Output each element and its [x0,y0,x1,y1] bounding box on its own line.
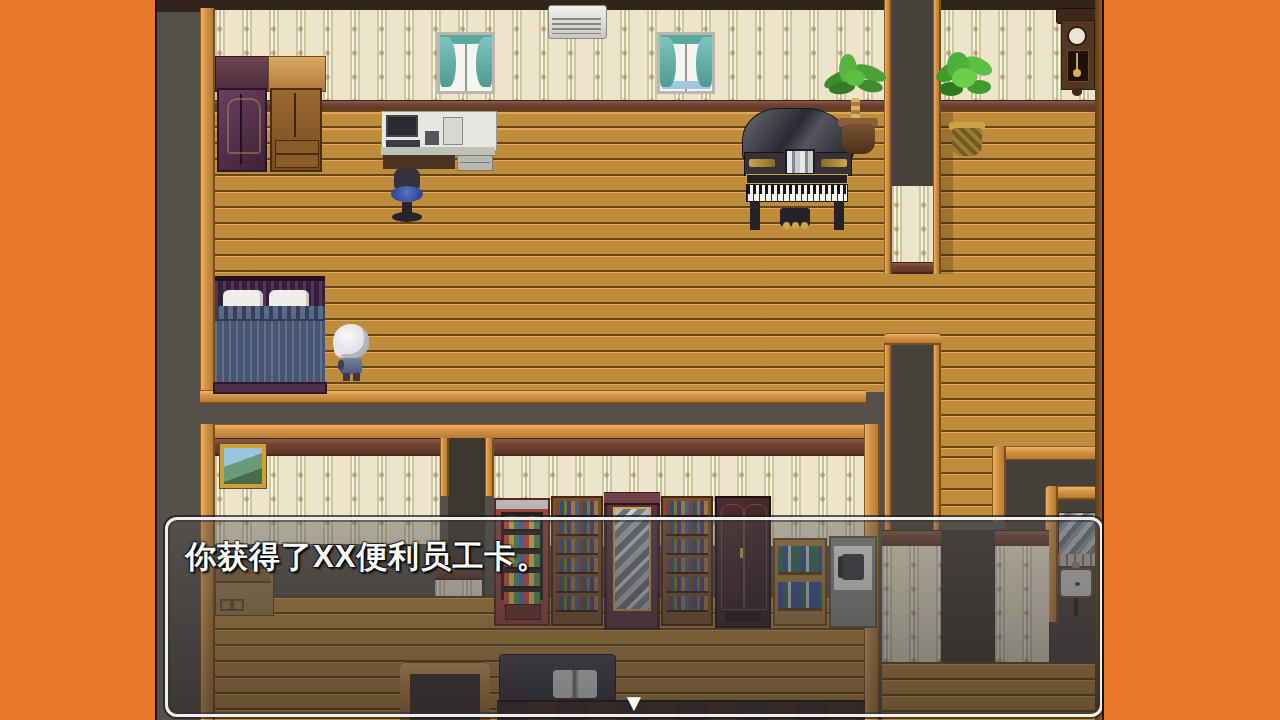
character-leg [343,373,350,381]
dialog-box[interactable]: 你获得了XX便利员工卡。 ▼ [165,517,1103,717]
bed-blanket [215,306,325,384]
book-row [556,501,598,517]
blanket-fold [215,306,325,321]
potted-plant [935,52,995,158]
chair-seat [391,186,423,202]
picture-frame [220,444,266,488]
piano-keys [746,184,848,202]
piano-gold-ornament [749,159,775,167]
desk-drawers [457,155,493,171]
piano-leg [834,202,844,230]
computer-keyboard [386,140,420,147]
piano-caster [792,222,799,229]
curtain-left [440,37,456,87]
desktop-letterbox: { "dialog": { "text": "你获得了XX便利员工卡。", "c… [0,0,1280,720]
clock-face [1067,26,1087,46]
wall-opening-dark [892,0,933,188]
piano-pedal-box [780,208,810,226]
message-continue-arrow-icon[interactable]: ▼ [622,692,646,714]
wardrobe [217,88,267,172]
game-viewport[interactable]: 你获得了XX便利员工卡。 ▼ [155,0,1104,720]
wooden-cabinet [270,88,322,172]
clock-pendulum-window [1067,50,1089,82]
character-hair-bang [334,344,344,356]
desk-gadget [425,131,439,145]
cabinet-drawer [275,154,319,168]
clock-pendulum-disc [1073,69,1081,77]
piano-caster [801,222,808,229]
cabinet-door-line [294,93,296,137]
lower-wall-column-left [884,333,892,533]
plant-leaf [952,68,976,88]
cabinet-top [268,56,326,92]
wardrobe-top [215,56,271,92]
character-leg [353,373,360,381]
office-chair [390,168,424,224]
desk-under-shelf [383,155,455,169]
wall-column-baseboard [892,262,933,274]
wall-clock [1056,8,1098,98]
window-left [437,32,495,94]
piano-leg [750,202,760,230]
palm-pot [842,124,875,154]
door-gap-trim-left [440,438,449,496]
piano-caster [783,222,790,229]
computer-desk [381,111,495,169]
bed-footboard [213,382,327,394]
air-conditioner-louvers [552,18,601,34]
lower-wall-column-top [884,333,941,345]
computer-monitor [386,115,418,137]
wardrobe-ornament [227,98,261,154]
plant-pot-woven [952,128,982,156]
curtain-right [696,37,712,87]
door-gap-trim-right [485,438,494,496]
clock-finial [1072,88,1082,96]
right-hall-floor [939,110,1095,456]
drawer-line [460,162,490,163]
mirror-pediment [604,493,660,505]
double-bed [213,274,327,396]
lower-wall-cornice-right [494,438,864,456]
air-conditioner [548,5,607,39]
piano-music-stand [785,149,815,175]
player-character [332,324,370,382]
piano-key-rail [746,174,848,184]
piano-black-keys [747,185,847,194]
window-right [657,32,715,94]
vending-top [496,500,548,509]
cabinet-drawer [275,140,319,154]
dialog-text: 你获得了XX便利员工卡。 [185,536,548,578]
palm-frond [845,70,865,86]
right-hall-floor-lower [939,456,993,518]
chair-base [392,212,422,222]
character-arm [338,360,344,370]
book-row [666,501,708,517]
bathroom-wall-trim-v [992,446,1006,522]
lower-wall-column-right [933,333,941,533]
desk-printer [443,117,463,145]
bathroom-wall-trim-h [992,446,1095,461]
chair-back [394,168,420,188]
piano-gold-ornament [821,159,847,167]
lower-wall-column-dark [892,345,933,533]
palm-plant [823,54,889,156]
curtain-left [660,37,676,87]
wall-column-wallpaper [892,186,933,264]
curtain-right [476,37,492,87]
